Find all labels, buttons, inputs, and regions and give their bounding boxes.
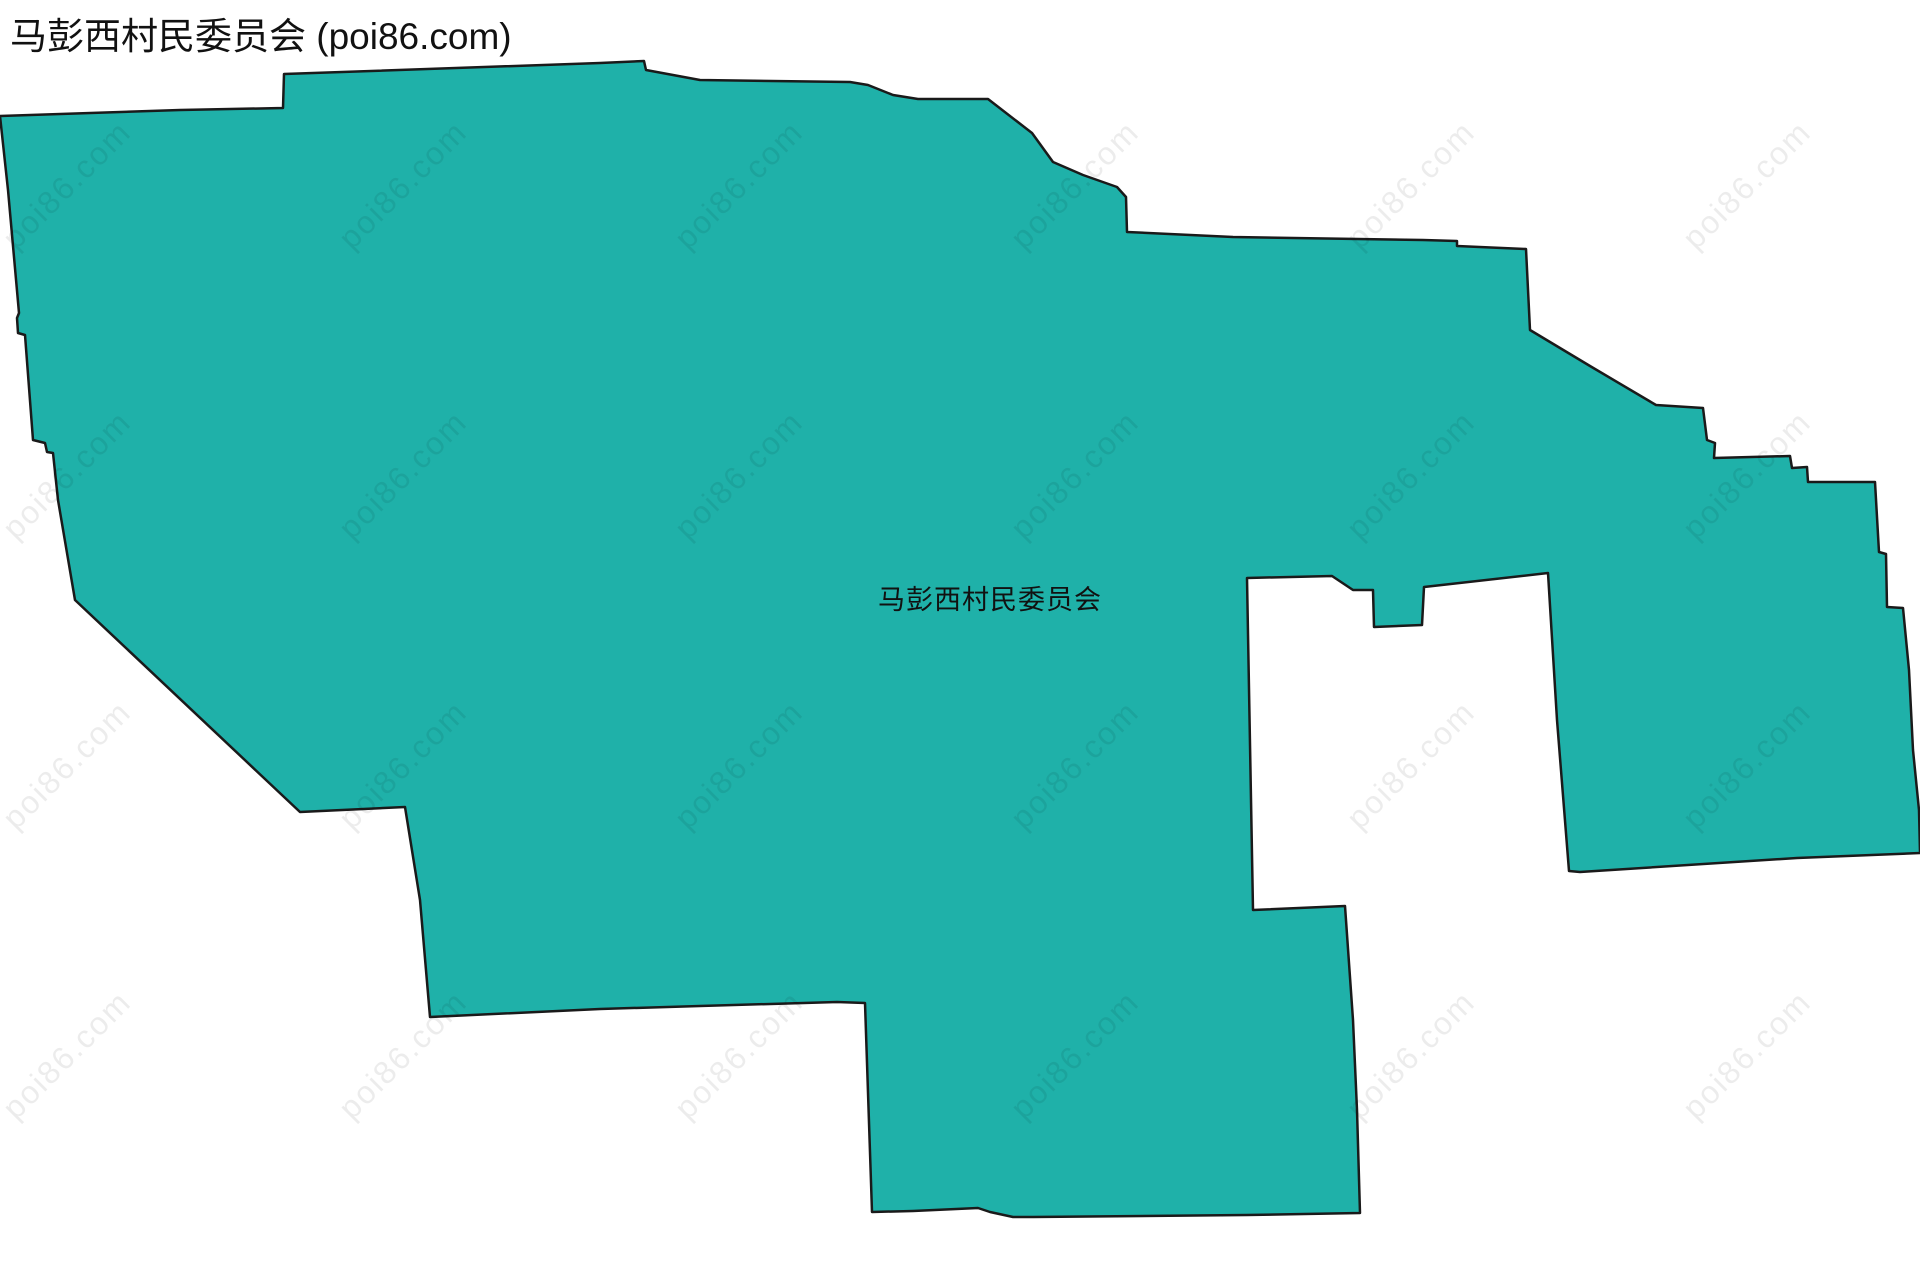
- region-label: 马彭西村民委员会: [878, 578, 1102, 617]
- region-polygon: [0, 61, 1920, 1217]
- map-canvas: poi86.compoi86.compoi86.compoi86.compoi8…: [0, 0, 1920, 1282]
- region-map: [0, 0, 1920, 1282]
- page-title: 马彭西村民委员会 (poi86.com): [10, 6, 512, 60]
